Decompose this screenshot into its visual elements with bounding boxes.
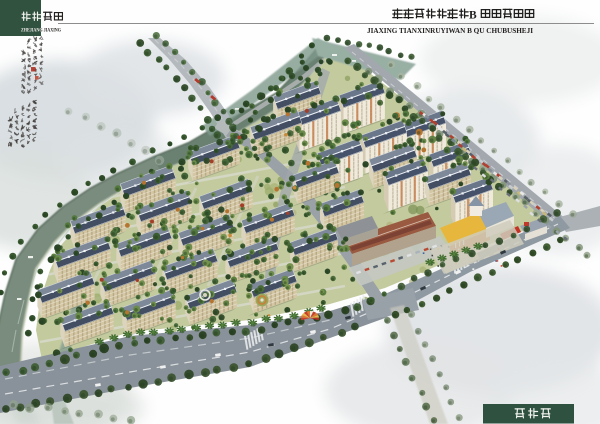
svg-text:JIAXING TIANXINRUYIWAN B QU CH: JIAXING TIANXINRUYIWAN B QU CHUBUSHEJI: [367, 27, 533, 35]
svg-text:B: B: [469, 10, 477, 22]
